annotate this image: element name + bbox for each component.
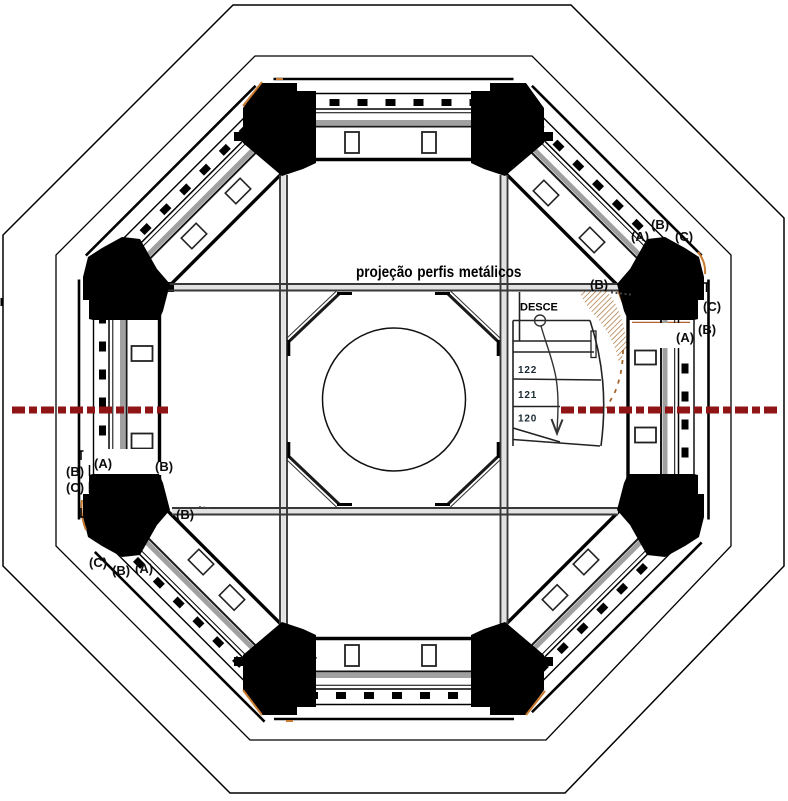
svg-text:(A): (A)	[135, 561, 153, 576]
svg-text:(A): (A)	[94, 456, 112, 471]
svg-text:(A): (A)	[631, 229, 649, 244]
svg-text:projeção perfis metálicos: projeção perfis metálicos	[356, 264, 521, 281]
svg-text:(A): (A)	[676, 330, 694, 345]
svg-text:(C): (C)	[703, 299, 721, 314]
svg-text:122: 122	[518, 365, 537, 376]
svg-text:(B): (B)	[112, 563, 130, 578]
svg-text:121: 121	[518, 390, 537, 401]
svg-text:(B): (B)	[155, 459, 173, 474]
svg-text:(C): (C)	[675, 229, 693, 244]
svg-text:(C): (C)	[66, 480, 84, 495]
svg-text:(B): (B)	[698, 322, 716, 337]
svg-text:(B): (B)	[176, 507, 194, 522]
svg-text:(C): (C)	[89, 555, 107, 570]
svg-text:(B): (B)	[66, 464, 84, 479]
svg-text:(B): (B)	[651, 217, 669, 232]
svg-text:120: 120	[518, 414, 537, 425]
svg-text:(B): (B)	[590, 277, 608, 292]
svg-text:DESCE: DESCE	[520, 302, 558, 314]
